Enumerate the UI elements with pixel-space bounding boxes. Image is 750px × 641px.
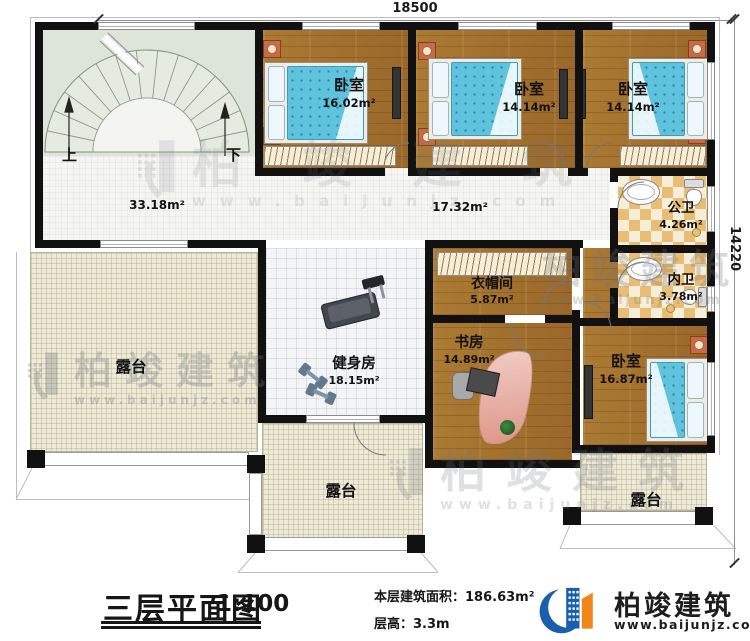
floor-height-label: 层高：	[374, 617, 413, 632]
wall	[425, 460, 580, 468]
column	[247, 535, 265, 553]
floor-drain	[666, 304, 675, 313]
wall	[545, 315, 572, 323]
hall-area-label: 33.18m²	[129, 198, 185, 214]
railing	[247, 537, 425, 551]
floor-height-value: 3.3m	[413, 617, 450, 632]
wall	[258, 240, 266, 423]
outline-right	[719, 17, 720, 455]
window	[707, 62, 715, 140]
outline-top	[30, 17, 720, 18]
eave-left-v	[16, 252, 17, 500]
eave-right-diag2	[714, 525, 736, 548]
eave-bottom-h	[238, 572, 438, 573]
window	[306, 415, 380, 423]
building-area-label: 本层建筑面积：	[374, 590, 465, 605]
bed-bedroom4	[646, 358, 708, 442]
wall	[408, 22, 416, 176]
building-area-text: 本层建筑面积：186.63m²	[374, 586, 534, 605]
eave-left-h	[16, 499, 260, 500]
room-label-public-bath: 公卫 4.26m²	[659, 200, 702, 232]
window	[100, 240, 188, 248]
wall	[255, 22, 263, 176]
sink	[622, 179, 660, 205]
window	[98, 22, 195, 30]
eave-right-diag1	[560, 525, 571, 548]
room-label-bedroom3: 卧室 14.14m²	[606, 80, 659, 114]
room-label-study: 书房 14.89m²	[443, 334, 494, 367]
plant	[500, 420, 515, 435]
pillows	[268, 66, 285, 140]
room-label-bedroom1: 卧室 16.02m²	[322, 76, 375, 110]
mattress	[650, 362, 685, 438]
outline-left	[30, 17, 31, 252]
wall	[380, 415, 433, 423]
terrace-left-label: 露台	[115, 357, 146, 377]
wall	[255, 168, 385, 176]
dimension-width: 18500	[392, 1, 437, 16]
dimension-line-right	[734, 20, 735, 565]
nightstand	[688, 40, 706, 58]
column	[407, 535, 425, 553]
window	[707, 186, 715, 232]
pillows	[432, 62, 449, 136]
terrace-right-label: 露台	[630, 490, 661, 510]
brand-website: www.baijunjz.com	[614, 617, 750, 632]
railing	[27, 452, 249, 466]
wardrobe-bedroom1	[264, 146, 396, 166]
column	[247, 455, 265, 473]
wall	[575, 22, 583, 176]
wall	[610, 288, 618, 320]
railing	[249, 473, 262, 535]
nightstand	[263, 40, 281, 58]
title-underline	[101, 621, 261, 624]
wall	[425, 240, 575, 248]
sink	[626, 257, 662, 281]
wall	[568, 168, 588, 176]
window	[707, 362, 715, 436]
room-label-cloakroom: 衣帽间 5.87m²	[470, 275, 513, 307]
floor-plan-page: 柏竣建筑 www.baijunjz.com 柏竣建筑 www.baijunjz.…	[0, 0, 750, 641]
dimension-line-top	[98, 20, 732, 21]
wall	[258, 415, 306, 423]
eave-bottom-diag2	[420, 551, 438, 572]
window	[707, 286, 715, 312]
dimension-height: 14220	[727, 226, 742, 271]
wall	[572, 240, 580, 278]
wall	[575, 318, 715, 326]
wall	[572, 310, 580, 445]
wall	[425, 240, 433, 468]
railing	[563, 511, 713, 525]
wall	[433, 315, 505, 323]
wall	[610, 253, 618, 262]
window	[302, 22, 380, 30]
nightstand	[690, 336, 708, 354]
wardrobe-bedroom2	[432, 146, 528, 166]
corridor-area-label: 17.32m²	[432, 200, 488, 216]
spiral-staircase	[43, 28, 255, 156]
column	[563, 507, 581, 525]
wall	[610, 245, 715, 253]
room-label-inner-bath: 内卫 3.78m²	[659, 272, 702, 304]
tv-bedroom2	[560, 70, 567, 118]
column	[695, 507, 713, 525]
floor-height-text: 层高：3.3m	[374, 613, 450, 632]
wall	[610, 168, 618, 182]
wardrobe-bedroom3	[620, 146, 706, 166]
window	[458, 22, 537, 30]
room-label-gym: 健身房 18.15m²	[328, 355, 379, 388]
wall	[35, 22, 43, 248]
wall	[572, 445, 715, 453]
column	[27, 450, 45, 468]
tv-bedroom4	[585, 366, 592, 418]
room-label-bedroom2: 卧室 14.14m²	[502, 80, 555, 114]
wardrobe-cloakroom	[437, 252, 567, 276]
pillows	[687, 62, 704, 136]
wall	[612, 168, 715, 176]
building-area-value: 186.63m²	[465, 590, 534, 605]
brand-logo-icon	[538, 580, 610, 638]
eave-bottom-diag1	[238, 551, 257, 573]
terrace-bottom-label: 露台	[325, 481, 356, 501]
eave-right-h	[560, 548, 736, 549]
title-underline	[101, 626, 261, 629]
stairs-up-label: 上	[62, 144, 77, 165]
plan-scale: 1:100	[216, 591, 289, 617]
wall	[408, 168, 540, 176]
terrace-left-floor	[30, 252, 258, 452]
window	[612, 22, 690, 30]
tv-bedroom1	[393, 68, 400, 118]
pillows	[687, 362, 704, 438]
room-label-bedroom4: 卧室 16.87m²	[599, 352, 652, 386]
stairs-down-label: 下	[226, 144, 241, 165]
